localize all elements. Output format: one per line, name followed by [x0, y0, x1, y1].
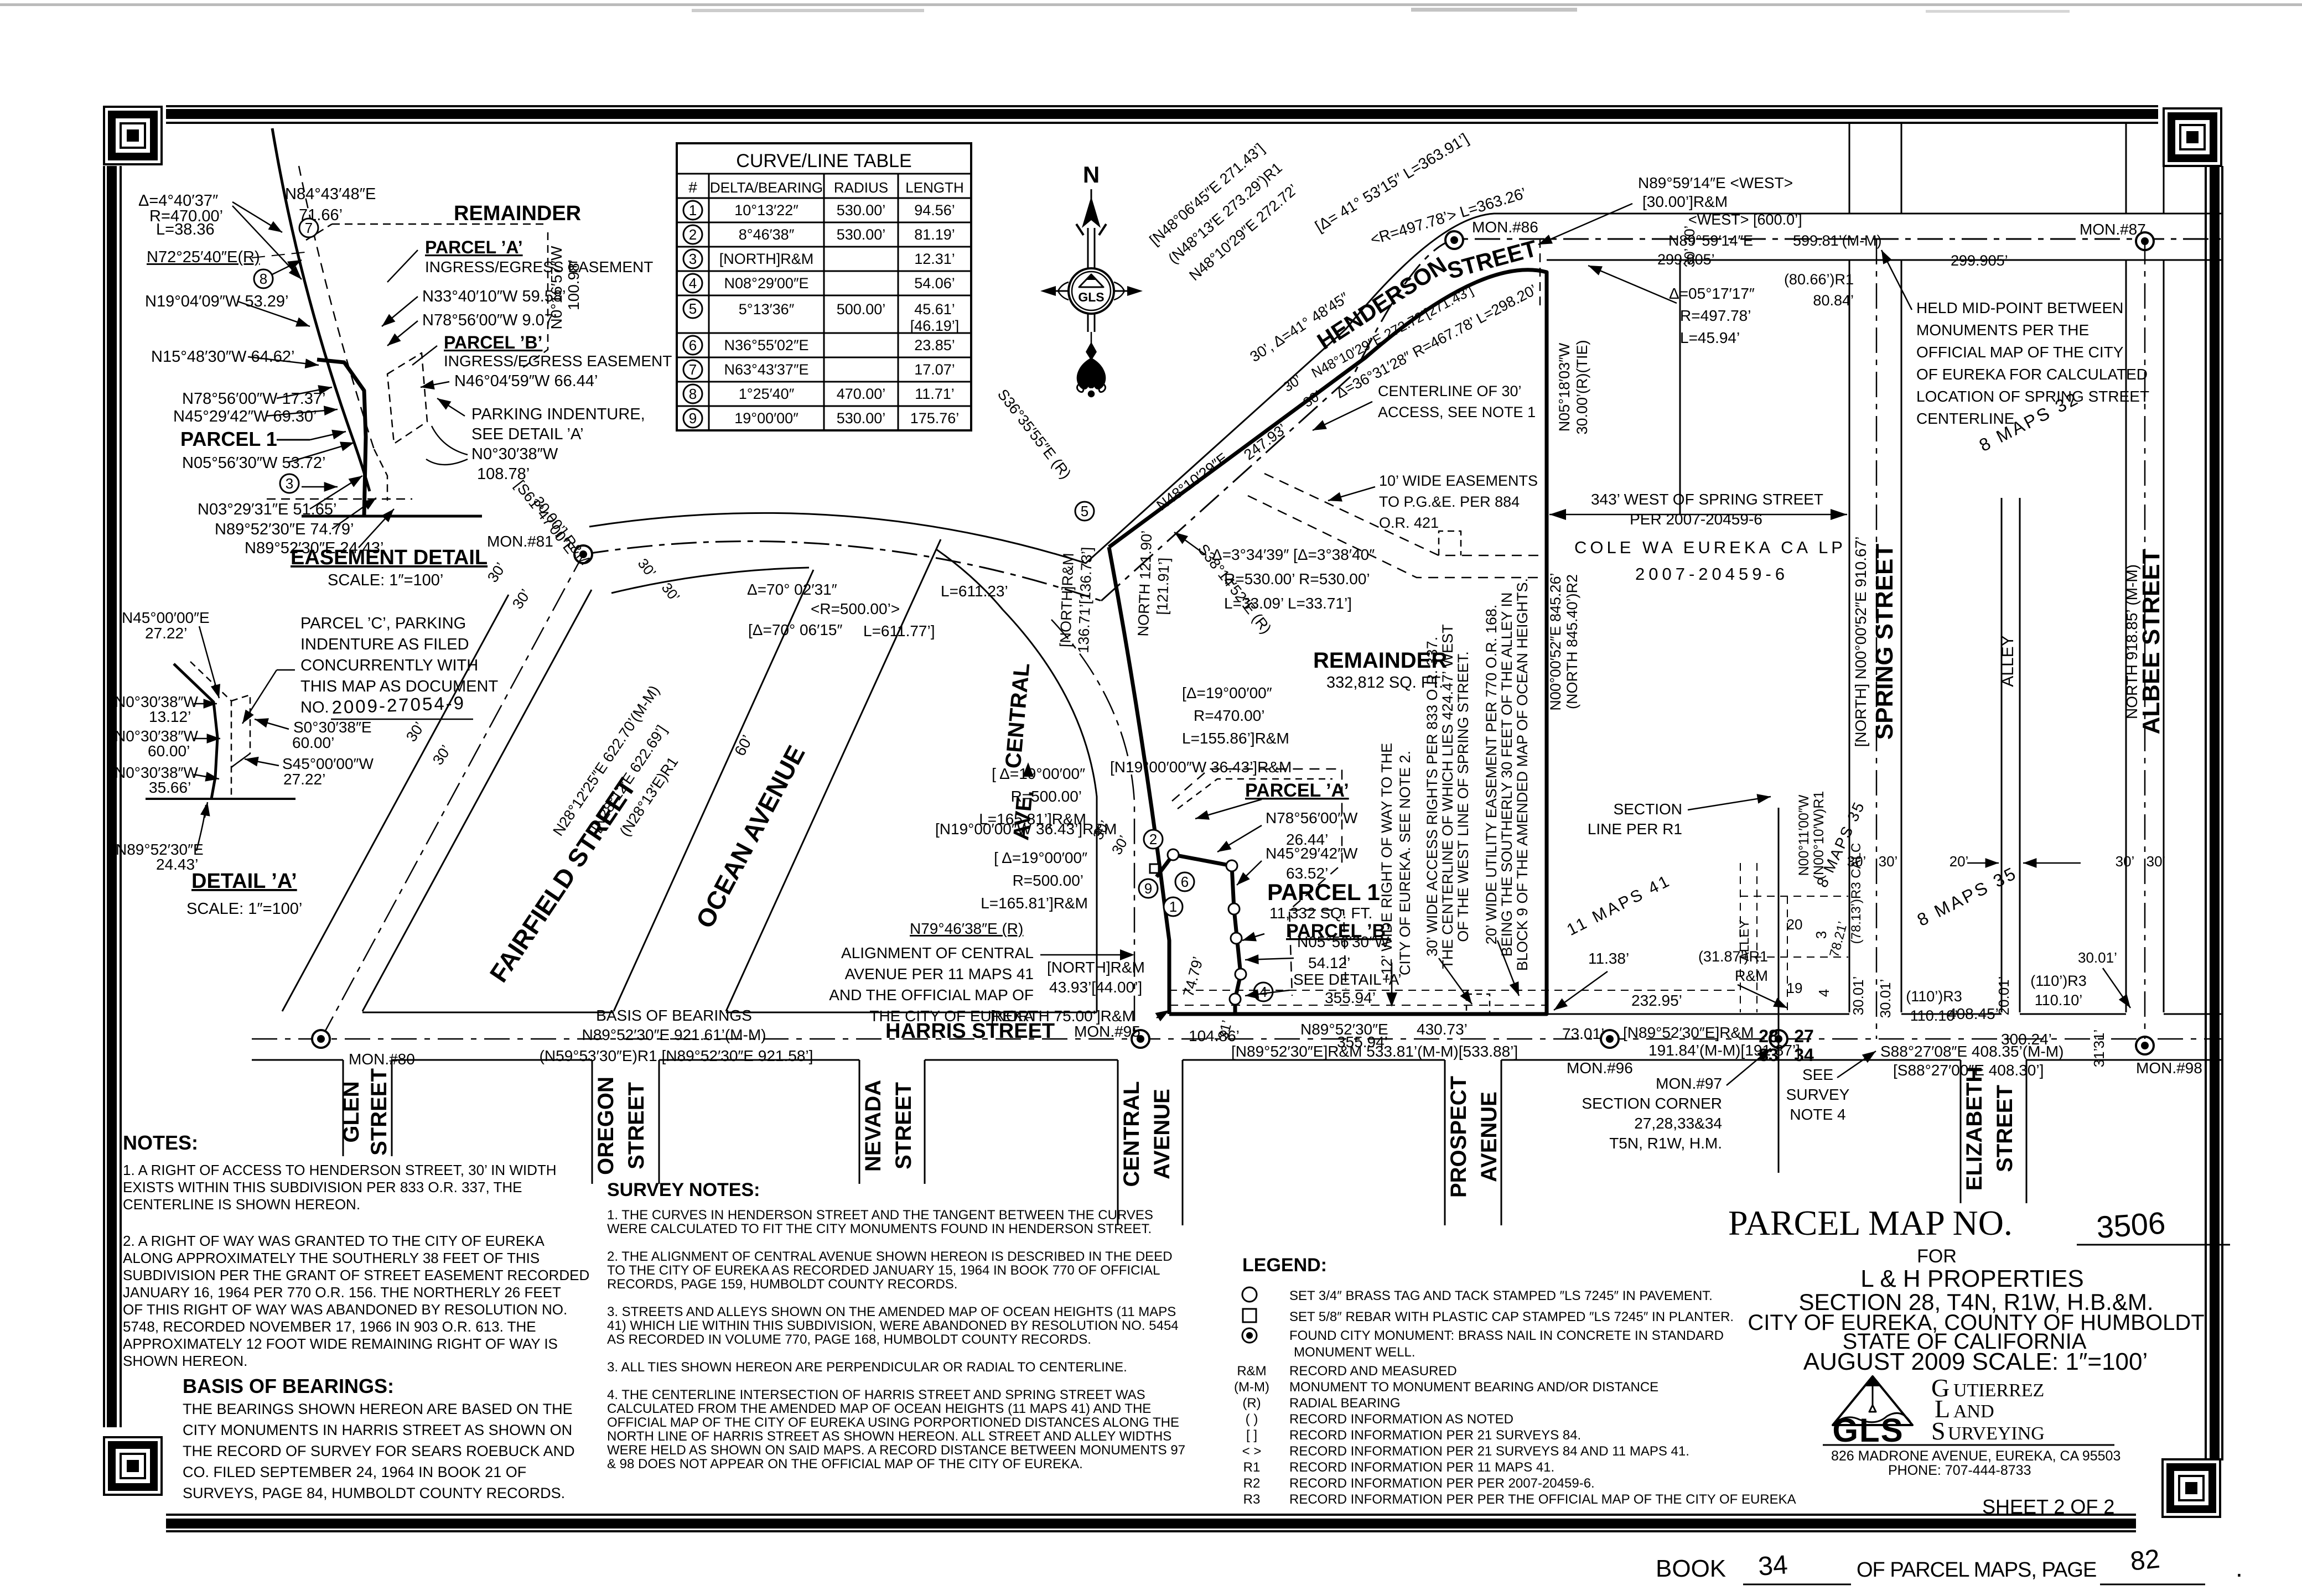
svg-text:L=33.09’ L=33.71’]: L=33.09’ L=33.71’]	[1224, 595, 1352, 612]
svg-text:ELIZABETH: ELIZABETH	[1962, 1067, 1987, 1190]
svg-text:AUGUST 2009 SCALE: 1″=100’: AUGUST 2009 SCALE: 1″=100’	[1803, 1348, 2148, 1375]
svg-text:RECORD INFORMATION AS NOTED: RECORD INFORMATION AS NOTED	[1289, 1412, 1513, 1427]
svg-text:FOUND CITY MONUMENT: BRASS: FOUND CITY MONUMENT: BRASS NAIL IN CONCR…	[1289, 1328, 1724, 1343]
svg-text:WERE CALCULATED TO FIT THE: WERE CALCULATED TO FIT THE CITY MONUMENT…	[607, 1221, 1152, 1236]
svg-text:4: 4	[1259, 984, 1267, 1000]
svg-text:REMAINDER: REMAINDER	[454, 202, 581, 225]
svg-text:N0°30′38″W: N0°30′38″W	[471, 445, 558, 463]
svg-text:SUBDIVISION PER THE GRANT: SUBDIVISION PER THE GRANT OF STREET EASE…	[123, 1267, 589, 1283]
svg-text:N78°56′00″W: N78°56′00″W	[1266, 809, 1358, 826]
svg-text:5: 5	[689, 300, 697, 317]
svg-text:9: 9	[1144, 880, 1152, 897]
svg-text:LINE PER R1: LINE PER R1	[1588, 820, 1682, 838]
svg-text:PARCEL 1: PARCEL 1	[180, 428, 277, 450]
svg-text:175.76’: 175.76’	[910, 410, 960, 427]
svg-text:MON.#81: MON.#81	[487, 533, 553, 550]
svg-text:[46.19’]: [46.19’]	[910, 318, 960, 334]
svg-text:R=497.78’: R=497.78’	[1680, 307, 1751, 324]
svg-text:31’: 31’	[2091, 1030, 2107, 1049]
svg-text:MONUMENT WELL.: MONUMENT WELL.	[1294, 1345, 1416, 1360]
svg-text:300.24’: 300.24’	[2001, 1031, 2052, 1048]
svg-text:SET 5/8″ REBAR WITH PLASTI: SET 5/8″ REBAR WITH PLASTIC CAP STAMPED …	[1289, 1309, 1734, 1324]
svg-text:OF EUREKA FOR CALCULATED: OF EUREKA FOR CALCULATED	[1916, 366, 2148, 383]
svg-text:[N19°00′00″W 36.43’]R&M: [N19°00′00″W 36.43’]R&M	[935, 820, 1117, 838]
svg-text:O.R. 421: O.R. 421	[1379, 514, 1439, 531]
svg-text:MON.#96: MON.#96	[1567, 1059, 1633, 1077]
svg-text:R&M: R&M	[1237, 1364, 1266, 1379]
svg-text:< >: < >	[1242, 1444, 1262, 1459]
svg-text:GLEN: GLEN	[339, 1081, 364, 1142]
svg-text:RECORD INFORMATION PER PER: RECORD INFORMATION PER PER THE OFFICIAL …	[1289, 1492, 1796, 1507]
svg-text:Δ=3°34′39″ [Δ=3°38′40″: Δ=3°34′39″ [Δ=3°38′40″	[1212, 546, 1375, 563]
svg-text:[Δ=70° 06′15″: [Δ=70° 06′15″	[748, 621, 842, 638]
svg-text:30’: 30’	[1681, 226, 1698, 245]
svg-text:(78.13’)R3 CALC: (78.13’)R3 CALC	[1849, 843, 1864, 944]
svg-text:MONUMENT TO MONUMENT BEARIN: MONUMENT TO MONUMENT BEARING AND/OR DIST…	[1289, 1380, 1658, 1395]
svg-text:TO P.G.&E. PER 884: TO P.G.&E. PER 884	[1379, 493, 1520, 510]
svg-text:12.31’: 12.31’	[914, 251, 955, 267]
svg-text:Δ=05°17′17″: Δ=05°17′17″	[1669, 285, 1755, 302]
svg-text:R1: R1	[1243, 1460, 1261, 1475]
svg-text:530.00’: 530.00’	[837, 410, 886, 427]
svg-text:N72°25′40″E(R): N72°25′40″E(R)	[147, 248, 260, 266]
svg-text:191.84’(M-M)[191.87’]: 191.84’(M-M)[191.87’]	[1648, 1042, 1800, 1059]
svg-text:PARCEL 1: PARCEL 1	[1267, 879, 1380, 905]
svg-text:OREGON: OREGON	[594, 1077, 618, 1175]
svg-text:NO.: NO.	[300, 699, 329, 716]
svg-text:T5N, R1W, H.M.: T5N, R1W, H.M.	[1609, 1135, 1722, 1152]
svg-text:60.00’: 60.00’	[148, 742, 190, 760]
svg-text:L=611.77’]: L=611.77’]	[863, 622, 935, 640]
svg-text:MON.#98: MON.#98	[2136, 1059, 2202, 1077]
svg-text:STREET: STREET	[624, 1082, 649, 1169]
svg-text:(NORTH 845.40’)R2: (NORTH 845.40’)R2	[1564, 574, 1580, 709]
svg-text:NORTH LINE OF HARRIS STREE: NORTH LINE OF HARRIS STREET AS SHOWN HER…	[607, 1429, 1171, 1444]
svg-text:DETAIL ’A’: DETAIL ’A’	[191, 870, 297, 893]
svg-text:3: 3	[286, 475, 293, 492]
svg-text:FOR: FOR	[1917, 1246, 1957, 1267]
svg-text:(110’)R3: (110’)R3	[2030, 973, 2087, 989]
svg-text:OF PARCEL MAPS, PAGE: OF PARCEL MAPS, PAGE	[1857, 1558, 2096, 1582]
svg-text:SHEET 2 OF 2: SHEET 2 OF 2	[1982, 1495, 2114, 1518]
svg-text:N89°52′30″E 921.61’(M-M): N89°52′30″E 921.61’(M-M)	[582, 1026, 766, 1043]
svg-text:TO THE CITY OF EUREKA AS: TO THE CITY OF EUREKA AS RECORDED JANUAR…	[607, 1263, 1160, 1278]
svg-text:1: 1	[689, 202, 697, 219]
svg-text:826 MADRONE AVENUE, EUREKA,: 826 MADRONE AVENUE, EUREKA, CA 95503	[1831, 1448, 2120, 1464]
svg-text:N89°59′14″E <WEST>: N89°59′14″E <WEST>	[1638, 174, 1793, 191]
svg-text:(N59°53′30″E)R1 [N89°52′30″E: (N59°53′30″E)R1 [N89°52′30″E 921.58’]	[540, 1047, 813, 1064]
svg-text:1: 1	[1169, 898, 1177, 915]
svg-text:[30.00’]R&M: [30.00’]R&M	[1642, 193, 1728, 210]
svg-text:R&M: R&M	[1735, 968, 1768, 984]
svg-text:(M-M): (M-M)	[1234, 1380, 1269, 1395]
svg-text:1. A RIGHT OF ACCESS TO: 1. A RIGHT OF ACCESS TO HENDERSON STREET…	[123, 1162, 557, 1178]
svg-text:(R): (R)	[1242, 1396, 1261, 1411]
svg-text:R3: R3	[1243, 1492, 1261, 1507]
svg-text:34: 34	[1757, 1550, 1788, 1582]
svg-text:BASIS OF BEARINGS:: BASIS OF BEARINGS:	[183, 1375, 394, 1397]
svg-text:3. ALL TIES SHOWN HEREON: 3. ALL TIES SHOWN HEREON ARE PERPENDICUL…	[607, 1360, 1127, 1375]
svg-text:[N89°52′30″E]R&M 533.81’(M-M): [N89°52′30″E]R&M 533.81’(M-M)[533.88’]	[1231, 1043, 1518, 1060]
svg-text:N45°29′42″W: N45°29′42″W	[1266, 845, 1358, 862]
svg-text:N78°56′00″W 9.07’: N78°56′00″W 9.07’	[422, 311, 557, 329]
svg-text:(80.66’)R1: (80.66’)R1	[1784, 271, 1854, 288]
svg-text:31’: 31’	[2091, 1048, 2107, 1068]
svg-text:N45°00′00″E: N45°00′00″E	[122, 609, 210, 626]
svg-text:SHOWN HEREON.: SHOWN HEREON.	[123, 1353, 247, 1369]
svg-text:CALCULATED FROM THE AMENDED: CALCULATED FROM THE AMENDED MAP OF OCEAN…	[607, 1401, 1151, 1416]
svg-text:SURVEY NOTES:: SURVEY NOTES:	[607, 1179, 760, 1200]
svg-text:299.905’: 299.905’	[1951, 252, 2008, 269]
svg-text:THE CENTERLINE OF WHICH LI: THE CENTERLINE OF WHICH LIES 424.47’ WES…	[1439, 624, 1456, 969]
svg-text:2. THE ALIGNMENT OF CENTRA: 2. THE ALIGNMENT OF CENTRAL AVENUE SHOWN…	[607, 1249, 1173, 1264]
svg-text:N63°43′37″E: N63°43′37″E	[724, 361, 808, 378]
svg-text:73.01’: 73.01’	[1562, 1025, 1604, 1042]
svg-text:4: 4	[1816, 989, 1832, 997]
svg-text:MON.#97: MON.#97	[1656, 1075, 1722, 1092]
svg-text:OF THE WEST LINE OF SPRIN: OF THE WEST LINE OF SPRING STREET.	[1455, 651, 1471, 942]
svg-text:1. THE CURVES IN HENDERSON: 1. THE CURVES IN HENDERSON STREET AND TH…	[607, 1208, 1153, 1223]
svg-text:20’: 20’	[1950, 853, 1969, 870]
svg-text:SPRING STREET: SPRING STREET	[1871, 544, 1898, 740]
svg-text:MONUMENTS PER THE: MONUMENTS PER THE	[1916, 321, 2089, 339]
svg-text:2: 2	[689, 226, 697, 243]
svg-text:100.98’: 100.98’	[565, 259, 582, 310]
svg-text:GLS: GLS	[1832, 1412, 1904, 1449]
svg-text:3. STREETS AND ALLEYS SHOW: 3. STREETS AND ALLEYS SHOWN ON THE AMEND…	[607, 1304, 1176, 1319]
svg-text:N89°52′30″E 74.79’: N89°52′30″E 74.79’	[215, 521, 354, 538]
svg-text:EXISTS WITHIN THIS SUBDIVIS: EXISTS WITHIN THIS SUBDIVISION PER 833 O…	[123, 1179, 522, 1195]
svg-text:STREET: STREET	[891, 1082, 916, 1169]
svg-text:LENGTH: LENGTH	[905, 179, 963, 196]
svg-text:PROSPECT: PROSPECT	[1446, 1076, 1471, 1198]
svg-text:355.94’: 355.94’	[1325, 989, 1376, 1006]
svg-text:13.12’: 13.12’	[149, 708, 191, 725]
svg-text:R=530.00’ R=530.00’: R=530.00’ R=530.00’	[1224, 570, 1370, 588]
svg-text:SECTION: SECTION	[1614, 800, 1682, 818]
svg-text:30.01’: 30.01’	[1850, 976, 1867, 1016]
svg-text:PARKING INDENTURE,: PARKING INDENTURE,	[471, 406, 645, 423]
svg-text:19: 19	[1787, 980, 1803, 996]
svg-text:[NORTH] N00°00′52″E 910.67’: [NORTH] N00°00′52″E 910.67’	[1852, 537, 1869, 747]
svg-text:PARCEL ’B’: PARCEL ’B’	[444, 332, 542, 352]
svg-text:RECORD INFORMATION PER PER: RECORD INFORMATION PER PER 2007-20459-6.	[1289, 1476, 1595, 1491]
svg-text:S45°00′00″W: S45°00′00″W	[282, 755, 374, 772]
svg-text:.: .	[2236, 1553, 2243, 1582]
svg-text:81.19’: 81.19’	[914, 226, 955, 243]
svg-text:6: 6	[1181, 874, 1189, 890]
svg-text:SCALE: 1″=100’: SCALE: 1″=100’	[328, 571, 443, 589]
svg-text:ALBEE STREET: ALBEE STREET	[2138, 549, 2165, 734]
svg-text:BLOCK 9 OF THE AMENDED MA: BLOCK 9 OF THE AMENDED MAP OF OCEAN HEIG…	[1514, 578, 1531, 971]
svg-text:STREET: STREET	[367, 1068, 391, 1156]
svg-text:HARRIS STREET: HARRIS STREET	[885, 1020, 1055, 1043]
svg-text:AND: AND	[1953, 1401, 1994, 1422]
svg-text:[NORTH]R&M: [NORTH]R&M	[1047, 959, 1145, 976]
svg-text:CENTRAL: CENTRAL	[1119, 1081, 1144, 1187]
svg-text:CENTERLINE IS SHOWN HEREON.: CENTERLINE IS SHOWN HEREON.	[123, 1196, 360, 1213]
svg-text:8: 8	[689, 386, 697, 402]
svg-text:5748, RECORDED NOVEMBER 17,: 5748, RECORDED NOVEMBER 17, 1966 IN 903 …	[123, 1318, 536, 1335]
svg-text:R=500.00’: R=500.00’	[1011, 788, 1082, 805]
svg-text:27.22’: 27.22’	[283, 771, 325, 788]
svg-text:35.66’: 35.66’	[149, 779, 191, 796]
svg-text:[NORTH]R&M: [NORTH]R&M	[1057, 553, 1077, 647]
svg-text:S: S	[1931, 1417, 1946, 1445]
svg-text:530.00’: 530.00’	[837, 202, 886, 219]
svg-text:N15°48′30″W 64.62’: N15°48′30″W 64.62’	[151, 348, 294, 366]
svg-text:[ Δ=19°00′00″: [ Δ=19°00′00″	[994, 849, 1087, 866]
svg-text:7: 7	[305, 220, 313, 236]
svg-text:CONCURRENTLY WITH: CONCURRENTLY WITH	[300, 657, 478, 674]
svg-text:20.01’: 20.01’	[1995, 976, 2012, 1016]
svg-text:AND THE OFFICIAL MAP OF: AND THE OFFICIAL MAP OF	[829, 986, 1034, 1004]
svg-text:THE RECORD OF SURVEY FOR: THE RECORD OF SURVEY FOR SEARS ROEBUCK A…	[183, 1443, 575, 1459]
svg-text:NEVADA: NEVADA	[861, 1080, 885, 1172]
svg-text:R2: R2	[1243, 1476, 1261, 1491]
svg-text:8: 8	[260, 271, 267, 287]
svg-text:PARCEL MAP NO.: PARCEL MAP NO.	[1728, 1203, 2013, 1243]
svg-text:BOOK: BOOK	[1656, 1555, 1726, 1582]
svg-text:N46°04′59″W 66.44’: N46°04′59″W 66.44’	[454, 372, 598, 390]
svg-text:N45°29′42″W 69.30’: N45°29′42″W 69.30’	[173, 408, 317, 425]
svg-text:5°13′36″: 5°13′36″	[739, 301, 795, 318]
svg-text:2007-20459-6: 2007-20459-6	[1635, 564, 1788, 584]
svg-text:N03°29′31″E 51.65’: N03°29′31″E 51.65’	[198, 501, 336, 518]
svg-text:URVEYING: URVEYING	[1948, 1423, 2045, 1444]
svg-text:PER 2007-20459-6: PER 2007-20459-6	[1630, 511, 1762, 528]
svg-text:WERE HELD AS SHOWN ON SAI: WERE HELD AS SHOWN ON SAID MAPS. A RECOR…	[607, 1443, 1185, 1458]
svg-text:JANUARY 16, 1964 PER 770: JANUARY 16, 1964 PER 770 O.R. 156. THE N…	[123, 1284, 561, 1301]
svg-text:MON.#80: MON.#80	[349, 1051, 415, 1068]
svg-text:27,28,33&34: 27,28,33&34	[1634, 1115, 1722, 1132]
svg-text:L=45.94’: L=45.94’	[1680, 329, 1740, 346]
svg-text:470.00’: 470.00’	[837, 386, 886, 402]
svg-text:20’ WIDE UTILITY EASEMENT: 20’ WIDE UTILITY EASEMENT PER 770 O.R. 1…	[1483, 605, 1500, 945]
svg-text:7: 7	[689, 361, 697, 378]
svg-text:PHONE: 707-444-8733: PHONE: 707-444-8733	[1888, 1463, 2031, 1478]
svg-text:54.12’: 54.12’	[1308, 954, 1350, 971]
svg-text:N0°16′57″W: N0°16′57″W	[548, 246, 565, 329]
svg-text:30’: 30’	[2116, 853, 2135, 870]
svg-text:SEE: SEE	[1802, 1066, 1833, 1083]
svg-text:SET 3/4″ BRASS TAG AND TA: SET 3/4″ BRASS TAG AND TACK STAMPED ″LS …	[1289, 1288, 1713, 1303]
svg-text:( ): ( )	[1246, 1412, 1258, 1427]
svg-text:1°25′40″: 1°25′40″	[739, 386, 795, 402]
svg-text:(110’)R3: (110’)R3	[1906, 988, 1962, 1005]
svg-text:430.73’: 430.73’	[1417, 1021, 1468, 1038]
svg-text:CENTERLINE: CENTERLINE	[1916, 410, 2014, 427]
svg-text:(31.87’)R1: (31.87’)R1	[1698, 948, 1768, 965]
svg-text:GLS: GLS	[1078, 290, 1104, 304]
svg-text:94.56’: 94.56’	[914, 202, 955, 219]
svg-text:RECORD AND MEASURED: RECORD AND MEASURED	[1289, 1364, 1457, 1379]
svg-text:ALONG APPROXIMATELY THE SOU: ALONG APPROXIMATELY THE SOUTHERLY 38 FEE…	[123, 1250, 540, 1266]
svg-text:27.22’: 27.22’	[145, 625, 187, 642]
svg-text:3: 3	[689, 251, 697, 267]
svg-text:S0°30′38″E: S0°30′38″E	[293, 719, 372, 736]
svg-text:SECTION CORNER: SECTION CORNER	[1582, 1095, 1722, 1112]
svg-text:RECORDS, PAGE 159, HUMBOLDT: RECORDS, PAGE 159, HUMBOLDT COUNTY RECOR…	[607, 1277, 957, 1292]
svg-text:<R=500.00’>: <R=500.00’>	[811, 600, 900, 617]
svg-text:LOCATION OF SPRING STREET: LOCATION OF SPRING STREET	[1916, 388, 2149, 405]
svg-text:N00°00′52″E 845.26’: N00°00′52″E 845.26’	[1547, 573, 1564, 710]
svg-text:NOTE 4: NOTE 4	[1790, 1106, 1845, 1123]
svg-text:9: 9	[689, 410, 697, 427]
svg-text:30’ WIDE ACCESS RIGHTS PER: 30’ WIDE ACCESS RIGHTS PER 833 O.R. 337.	[1424, 637, 1440, 956]
svg-text:R=500.00’: R=500.00’	[1013, 872, 1083, 889]
svg-text:<WEST> [600.0’]: <WEST> [600.0’]	[1688, 211, 1802, 228]
svg-text:30’: 30’	[1681, 248, 1698, 268]
svg-text:AS RECORDED IN VOLUME 770,: AS RECORDED IN VOLUME 770, PAGE 168, HUM…	[607, 1332, 1091, 1347]
svg-text:ACCESS, SEE NOTE 1: ACCESS, SEE NOTE 1	[1378, 404, 1536, 420]
svg-text:[ Δ=19°00′00″: [ Δ=19°00′00″	[992, 765, 1085, 782]
svg-text:30.01’: 30.01’	[2078, 949, 2117, 966]
svg-text:SURVEY: SURVEY	[1786, 1086, 1850, 1103]
svg-text:8°46′38″: 8°46′38″	[739, 226, 795, 243]
svg-text:ALLEY: ALLEY	[1999, 635, 2017, 687]
svg-text:RADIAL BEARING: RADIAL BEARING	[1289, 1396, 1401, 1411]
svg-text:±12’ WIDE RIGHT OF WAY TO: ±12’ WIDE RIGHT OF WAY TO THE	[1378, 743, 1395, 983]
svg-text:RADIUS: RADIUS	[834, 179, 888, 196]
svg-text:108.78’: 108.78’	[477, 465, 530, 483]
svg-text:CITY OF EUREKA. SEE NOTE: CITY OF EUREKA. SEE NOTE 2.	[1397, 751, 1413, 975]
svg-text:AVENUE PER 11 MAPS 41: AVENUE PER 11 MAPS 41	[845, 965, 1034, 982]
svg-text:104.86’: 104.86’	[1189, 1027, 1240, 1044]
svg-text:SEE DETAIL ’A’: SEE DETAIL ’A’	[471, 425, 584, 443]
svg-text:PARCEL ’A’: PARCEL ’A’	[425, 237, 523, 257]
svg-text:10°13′22″: 10°13′22″	[734, 202, 799, 219]
svg-text:L=165.81’]R&M: L=165.81’]R&M	[981, 895, 1088, 912]
svg-text:343’ WEST OF SPRING STREET: 343’ WEST OF SPRING STREET	[1591, 491, 1823, 508]
svg-text:10’ WIDE EASEMENTS: 10’ WIDE EASEMENTS	[1379, 472, 1538, 489]
svg-text:NOTES:: NOTES:	[123, 1131, 198, 1154]
svg-text:54.06’: 54.06’	[914, 275, 955, 292]
svg-text:N79°46′38″E (R): N79°46′38″E (R)	[910, 920, 1023, 937]
svg-text:MON.#95: MON.#95	[1074, 1023, 1140, 1040]
svg-text:19°00′00″: 19°00′00″	[734, 410, 799, 427]
svg-text:500.00’: 500.00’	[837, 301, 886, 318]
svg-text:RECORD INFORMATION PER 21: RECORD INFORMATION PER 21 SURVEYS 84.	[1289, 1428, 1581, 1443]
svg-text:DELTA/BEARING: DELTA/BEARING	[710, 179, 823, 196]
svg-text:599.81’(M-M): 599.81’(M-M)	[1793, 232, 1882, 249]
svg-text:[Δ=19°00′00″: [Δ=19°00′00″	[1182, 684, 1272, 701]
svg-text:L=155.86’]R&M: L=155.86’]R&M	[1182, 730, 1289, 747]
svg-text:3506: 3506	[2095, 1205, 2166, 1245]
svg-text:SCALE: 1″=100’: SCALE: 1″=100’	[186, 900, 302, 918]
svg-text:4. THE CENTERLINE INTERSECT: 4. THE CENTERLINE INTERSECTION OF HARRIS…	[607, 1387, 1145, 1402]
svg-text:17.07’: 17.07’	[914, 361, 955, 378]
svg-text:232.95’: 232.95’	[1631, 992, 1682, 1009]
svg-text:11.71’: 11.71’	[915, 386, 955, 402]
svg-text:80.84’: 80.84’	[1813, 292, 1854, 309]
svg-text:5: 5	[1081, 503, 1088, 519]
svg-text:45.61’: 45.61’	[914, 301, 955, 318]
svg-text:N19°04′09″W 53.29’: N19°04′09″W 53.29’	[145, 293, 288, 310]
svg-text:OFFICIAL MAP OF THE CITY: OFFICIAL MAP OF THE CITY OF EUREKA USING…	[607, 1415, 1179, 1430]
svg-text:60.00’: 60.00’	[292, 734, 334, 751]
svg-text:LEGEND:: LEGEND:	[1242, 1255, 1327, 1276]
svg-text:43.93’[44.00’]: 43.93’[44.00’]	[1049, 979, 1142, 996]
svg-text:#: #	[688, 179, 697, 196]
svg-text:INGRESS/EGRESS EASEMENT: INGRESS/EGRESS EASEMENT	[425, 258, 653, 275]
svg-text:AVENUE: AVENUE	[1150, 1089, 1174, 1179]
svg-text:APPROXIMATELY 12 FOOT WIDE: APPROXIMATELY 12 FOOT WIDE REMAINING RIG…	[123, 1335, 558, 1352]
svg-text:30.00’(R)(TIE): 30.00’(R)(TIE)	[1574, 340, 1590, 434]
svg-text:[ ]: [ ]	[1246, 1428, 1257, 1443]
svg-text:N00°11′00″W: N00°11′00″W	[1796, 794, 1812, 876]
svg-text:41) WHICH LIE WITHIN THIS: 41) WHICH LIE WITHIN THIS SUBDIVISION, W…	[607, 1318, 1179, 1333]
svg-text:SURVEYS, PAGE 84, HUMBOLDT: SURVEYS, PAGE 84, HUMBOLDT COUNTY RECORD…	[183, 1485, 565, 1501]
svg-text:RECORD INFORMATION PER 21: RECORD INFORMATION PER 21 SURVEYS 84 AND…	[1289, 1444, 1689, 1459]
svg-text:CURVE/LINE TABLE: CURVE/LINE TABLE	[736, 150, 911, 171]
svg-text:N05°56′30″W 53.72’: N05°56′30″W 53.72’	[182, 454, 325, 472]
svg-text:INGRESS/EGRESS EASEMENT: INGRESS/EGRESS EASEMENT	[444, 352, 672, 370]
svg-text:6: 6	[689, 337, 697, 353]
svg-text:UTIERREZ: UTIERREZ	[1953, 1380, 2044, 1401]
svg-text:11,332 SQ. FT.: 11,332 SQ. FT.	[1269, 904, 1372, 922]
svg-text:OFFICIAL MAP OF THE CITY: OFFICIAL MAP OF THE CITY	[1916, 344, 2124, 361]
svg-text:CITY MONUMENTS IN HARRIS S: CITY MONUMENTS IN HARRIS STREET AS SHOWN…	[183, 1422, 572, 1438]
svg-text:CENTERLINE OF 30’: CENTERLINE OF 30’	[1378, 383, 1522, 399]
svg-text:R=470.00’: R=470.00’	[1194, 707, 1264, 724]
svg-text:N33°40′10″W 59.58’: N33°40′10″W 59.58’	[422, 288, 566, 305]
svg-text:EASEMENT DETAIL: EASEMENT DETAIL	[291, 546, 488, 569]
svg-text:PARCEL ’C’, PARKING: PARCEL ’C’, PARKING	[300, 615, 466, 632]
svg-text:N84°43′48″E: N84°43′48″E	[285, 185, 376, 203]
svg-text:110.10’: 110.10’	[1910, 1007, 1958, 1024]
svg-text:Δ=70° 02′31″: Δ=70° 02′31″	[747, 581, 837, 598]
svg-text:30’: 30’	[1879, 853, 1898, 870]
svg-text:11.38’: 11.38’	[1588, 950, 1629, 967]
svg-text:2: 2	[1149, 831, 1157, 848]
svg-text:ALIGNMENT OF CENTRAL: ALIGNMENT OF CENTRAL	[841, 944, 1034, 961]
svg-text:BASIS OF BEARINGS: BASIS OF BEARINGS	[596, 1007, 752, 1024]
svg-text:20: 20	[1787, 916, 1803, 933]
svg-text:PARCEL ’A’: PARCEL ’A’	[1245, 780, 1349, 801]
svg-text:STREET: STREET	[1993, 1085, 2017, 1172]
svg-text:N05°18′03″W: N05°18′03″W	[1556, 342, 1573, 432]
svg-text:23.85’: 23.85’	[914, 337, 955, 353]
svg-text:30.01’: 30.01’	[1877, 979, 1894, 1018]
svg-text:N: N	[1083, 162, 1100, 188]
svg-text:L=38.36: L=38.36	[156, 221, 215, 238]
svg-text:THIS MAP AS DOCUMENT: THIS MAP AS DOCUMENT	[300, 678, 498, 695]
svg-text:[N89°52′30″E]R&M: [N89°52′30″E]R&M	[1623, 1024, 1754, 1041]
svg-text:L & H PROPERTIES: L & H PROPERTIES	[1860, 1265, 2083, 1292]
svg-text:AVENUE: AVENUE	[1477, 1091, 1501, 1182]
svg-text:THE BEARINGS SHOWN HEREON: THE BEARINGS SHOWN HEREON ARE BASED ON T…	[183, 1401, 573, 1417]
svg-text:[121.91’]: [121.91’]	[1154, 557, 1173, 615]
svg-text:[NORTH]R&M: [NORTH]R&M	[719, 251, 814, 267]
svg-text:L=611.23’: L=611.23’	[941, 583, 1008, 600]
svg-text:INDENTURE AS FILED: INDENTURE AS FILED	[300, 636, 469, 653]
svg-text:30’: 30’	[2147, 853, 2166, 870]
svg-text:82: 82	[2129, 1544, 2161, 1576]
svg-text:COLE WA EUREKA CA LP: COLE WA EUREKA CA LP	[1574, 538, 1846, 557]
svg-text:530.00’: 530.00’	[837, 226, 886, 243]
svg-text:[N19°00′00″W 36.43’]R&M: [N19°00′00″W 36.43’]R&M	[1110, 758, 1292, 776]
svg-text:2. A RIGHT OF WAY WAS GR: 2. A RIGHT OF WAY WAS GRANTED TO THE CIT…	[123, 1233, 545, 1249]
svg-text:MON.#87: MON.#87	[2080, 221, 2146, 238]
svg-text:OF THIS RIGHT OF WAY WAS: OF THIS RIGHT OF WAY WAS ABANDONED BY RE…	[123, 1301, 567, 1318]
svg-text:110.10’: 110.10’	[2035, 992, 2083, 1008]
svg-text:CO. FILED SEPTEMBER 24, 19: CO. FILED SEPTEMBER 24, 1964 IN BOOK 21 …	[183, 1464, 526, 1480]
svg-text:MON.#86: MON.#86	[1472, 219, 1538, 236]
svg-text:4: 4	[689, 275, 697, 292]
svg-text:N36°55′02″E: N36°55′02″E	[724, 337, 808, 353]
svg-text:BEING THE SOUTHERLY 30 FEE: BEING THE SOUTHERLY 30 FEET OF THE ALLEY…	[1499, 592, 1515, 957]
